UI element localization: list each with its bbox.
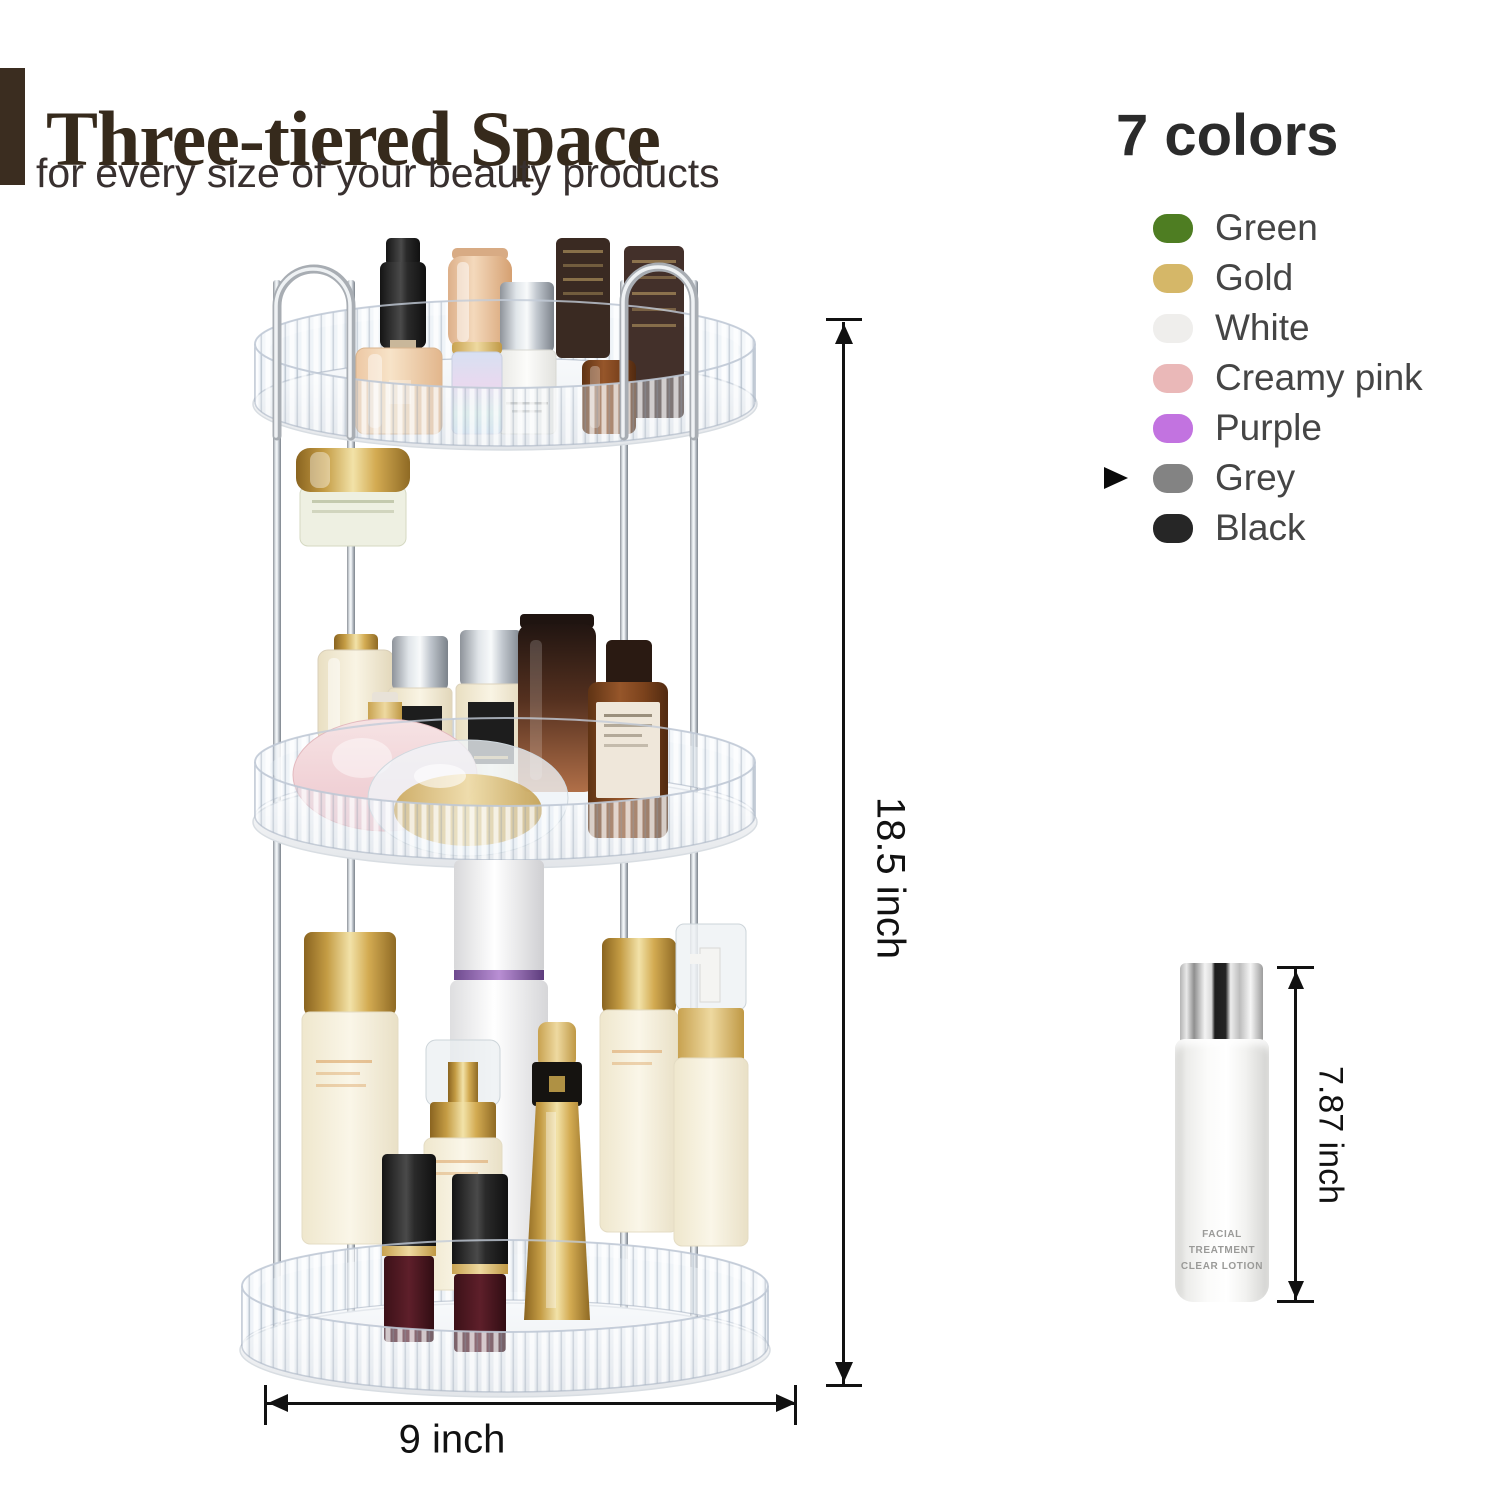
width-label: 9 inch: [399, 1418, 506, 1463]
black-swatch: [1153, 514, 1193, 543]
selected-arrow-icon: [1104, 467, 1128, 489]
gold-serum-bottle: [524, 1022, 590, 1320]
lipstick-black-1: [382, 1154, 436, 1342]
bottle-height-label: 7.87 inch: [1311, 1066, 1350, 1204]
width-dimension-line: [266, 1402, 796, 1405]
grey-swatch: [1153, 464, 1193, 493]
color-option-white: White: [1104, 303, 1444, 353]
gold-cream-jar: [296, 448, 410, 546]
bottle-cap: [1180, 963, 1263, 1041]
white-pump-bottle: [674, 924, 748, 1246]
color-label: Purple: [1215, 407, 1322, 449]
width-right-tick: [794, 1385, 797, 1425]
color-label: Black: [1215, 507, 1305, 549]
color-option-purple: Purple: [1104, 403, 1444, 453]
creamy-pink-swatch: [1153, 364, 1193, 393]
width-arrow-right-icon: [776, 1394, 796, 1412]
gold-swatch: [1153, 264, 1193, 293]
white-swatch: [1153, 314, 1193, 343]
green-swatch: [1153, 214, 1193, 243]
color-label: Grey: [1215, 457, 1295, 499]
color-label: Gold: [1215, 257, 1293, 299]
purple-swatch: [1153, 414, 1193, 443]
height-top-cap: [826, 318, 862, 321]
color-option-black: Black: [1104, 503, 1444, 553]
page-subtitle: for every size of your beauty products: [36, 150, 720, 197]
bottle-label-line2: CLEAR LOTION: [1175, 1259, 1269, 1275]
accent-bar: [0, 68, 25, 185]
color-label: White: [1215, 307, 1310, 349]
product-infographic: Three-tiered Space for every size of you…: [0, 0, 1500, 1500]
color-label: Creamy pink: [1215, 357, 1423, 399]
bottle-dim-arrow-down-icon: [1288, 1281, 1304, 1299]
top-tier: [253, 238, 757, 546]
lipstick-tube-1: [556, 238, 610, 358]
colors-heading: 7 colors: [1116, 102, 1338, 169]
height-label: 18.5 inch: [868, 797, 913, 959]
color-label: Green: [1215, 207, 1318, 249]
color-option-green: Green: [1104, 203, 1444, 253]
organizer-photo: [225, 228, 795, 1408]
height-dimension-line: [842, 322, 845, 1384]
width-left-tick: [264, 1385, 267, 1425]
height-arrow-down-icon: [835, 1362, 853, 1382]
bottle-dimension-line: [1294, 968, 1297, 1302]
color-option-gold: Gold: [1104, 253, 1444, 303]
color-option-grey: Grey: [1104, 453, 1444, 503]
bottle-label: FACIAL TREATMENT CLEAR LOTION: [1175, 1227, 1269, 1275]
lipstick-black-2: [452, 1174, 508, 1352]
bottle-dim-bottom-cap: [1277, 1300, 1314, 1303]
cream-gold-bottle-right: [600, 938, 678, 1232]
middle-tier: [253, 614, 757, 868]
bottle-label-line1: FACIAL TREATMENT: [1175, 1227, 1269, 1259]
height-bottom-cap: [826, 1384, 862, 1387]
color-option-creamy-pink: Creamy pink: [1104, 353, 1444, 403]
